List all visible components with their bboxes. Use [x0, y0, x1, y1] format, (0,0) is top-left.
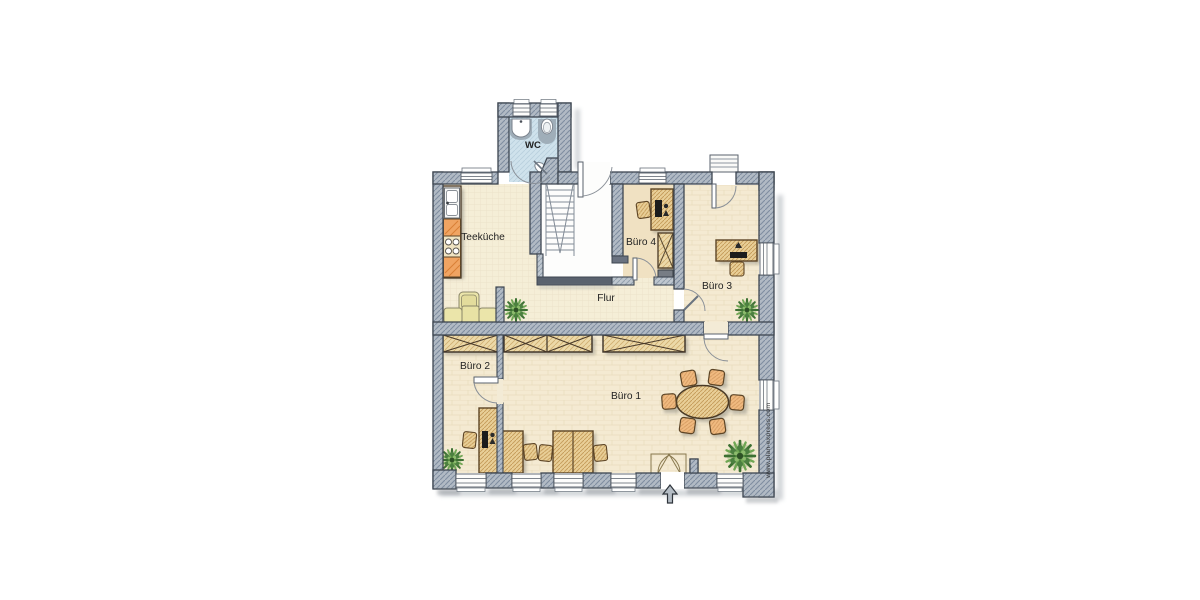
svg-text:Büro 1: Büro 1: [611, 391, 641, 402]
svg-text:WC: WC: [525, 140, 541, 151]
svg-text:Flur: Flur: [597, 293, 615, 304]
svg-text:www.plan-express.com: www.plan-express.com: [765, 403, 772, 479]
svg-text:Büro 4: Büro 4: [626, 237, 656, 248]
svg-text:Büro 2: Büro 2: [460, 361, 490, 372]
svg-text:Teeküche: Teeküche: [461, 232, 505, 243]
svg-text:Büro 3: Büro 3: [702, 281, 732, 292]
